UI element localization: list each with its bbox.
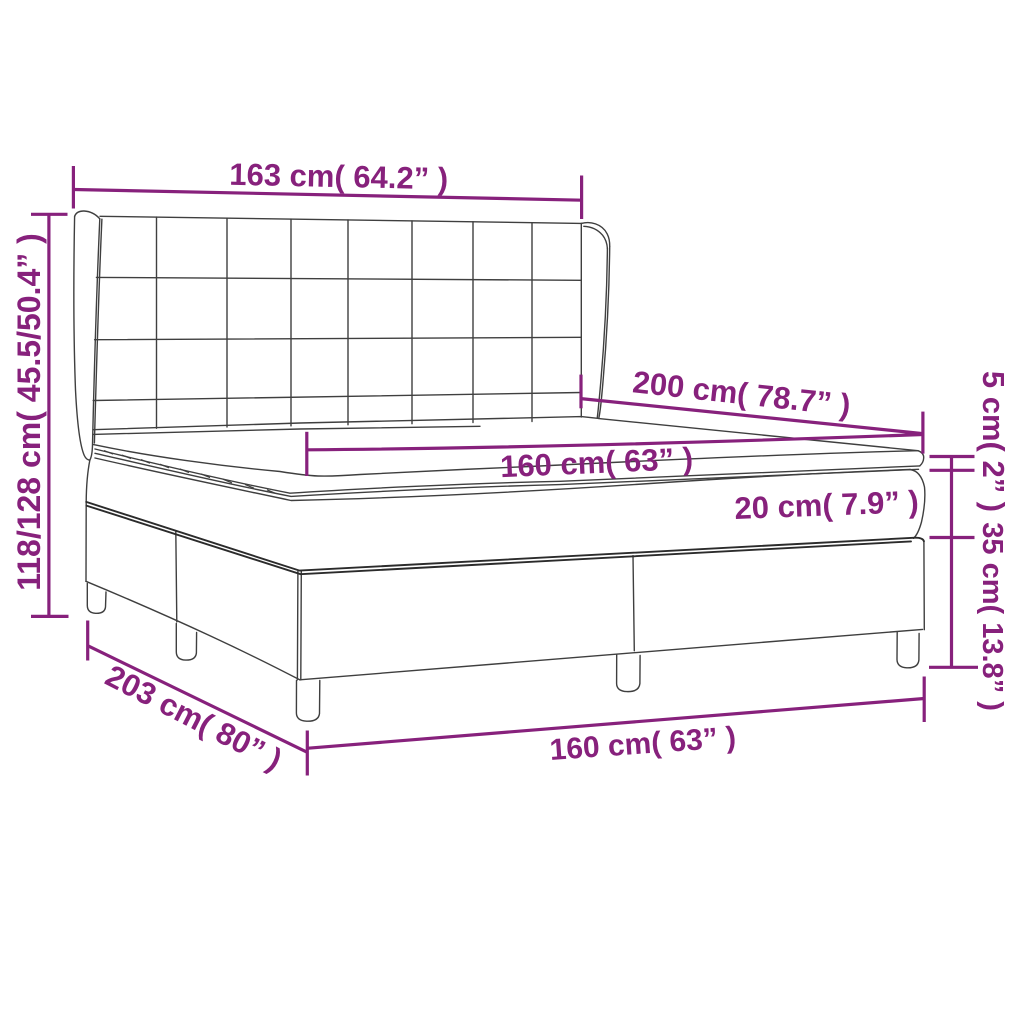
- svg-text:118/128 cm( 45.5/50.4” ): 118/128 cm( 45.5/50.4” ): [11, 233, 47, 591]
- svg-text:5 cm( 2” ): 5 cm( 2” ): [976, 371, 1011, 512]
- svg-text:35 cm( 13.8” ): 35 cm( 13.8” ): [976, 522, 1008, 711]
- svg-text:20 cm( 7.9” ): 20 cm( 7.9” ): [734, 484, 920, 526]
- svg-text:163 cm( 64.2” ): 163 cm( 64.2” ): [229, 157, 449, 197]
